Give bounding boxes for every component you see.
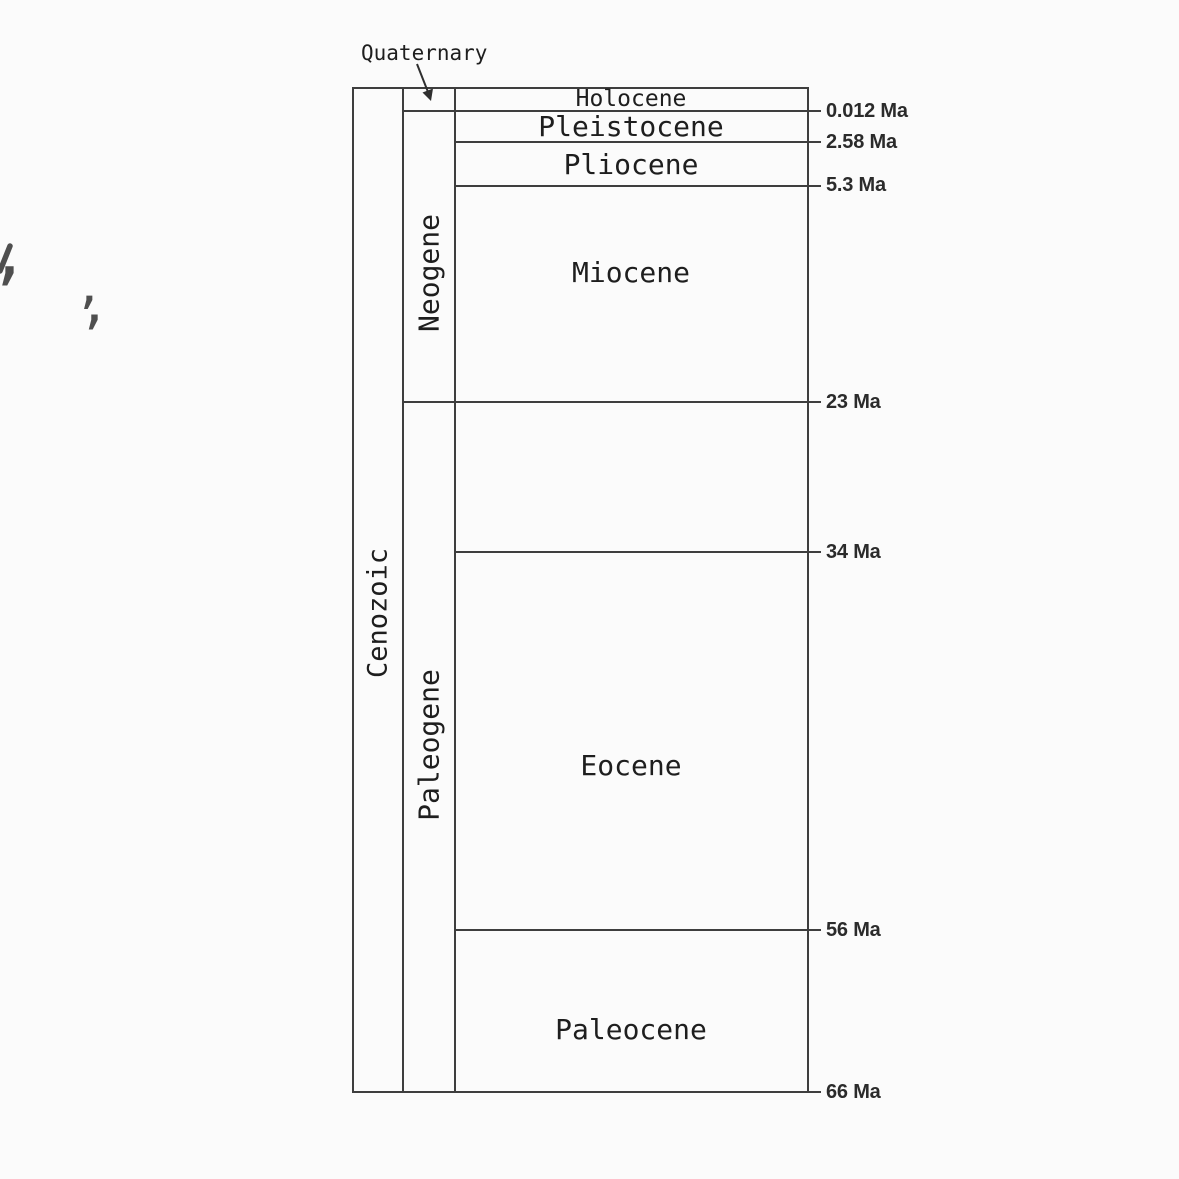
epoch-label-pleistocene: Pleistocene [455,112,807,142]
time-marker-34ma: 34 Ma [826,540,881,564]
frame-right-line [807,87,809,1093]
period-epoch-divider-line [454,87,456,1093]
boundary-line-23ma [402,401,821,403]
frame-left-line [352,87,354,1093]
boundary-line-66ma [352,1091,821,1093]
epoch-label-holocene: Holocene [455,87,807,111]
time-marker-66ma: 66 Ma [826,1080,881,1104]
stray-comma-1: , [0,202,21,295]
quaternary-arrow [417,64,433,101]
period-label-paleogene: Paleogene [413,669,446,821]
epoch-label-pliocene: Pliocene [455,150,807,180]
era-period-divider-line [402,87,404,1093]
stray-slash-stroke [0,246,10,271]
time-marker-0012ma: 0.012 Ma [826,99,908,123]
stray-comma-2: , [84,264,104,337]
boundary-line-34ma [454,551,821,553]
epoch-label-eocene: Eocene [455,750,807,782]
epoch-label-paleocene: Paleocene [455,1014,807,1046]
stray-apostrophe-2: ’ [79,284,97,352]
time-marker-23ma: 23 Ma [826,390,881,414]
boundary-line-53ma [454,185,821,187]
time-marker-56ma: 56 Ma [826,918,881,942]
stray-mark-left-edge: , ’ , [0,202,104,352]
boundary-line-56ma [454,929,821,931]
time-marker-53ma: 5.3 Ma [826,173,886,197]
period-label-neogene: Neogene [413,214,446,332]
era-label-cenozoic: Cenozoic [363,548,394,678]
geologic-time-scale-diagram: Cenozoic Neogene Paleogene Quaternary Ho… [0,0,1179,1179]
period-label-quaternary: Quaternary [361,40,487,66]
epoch-label-miocene: Miocene [455,257,807,289]
time-marker-258ma: 2.58 Ma [826,130,897,154]
